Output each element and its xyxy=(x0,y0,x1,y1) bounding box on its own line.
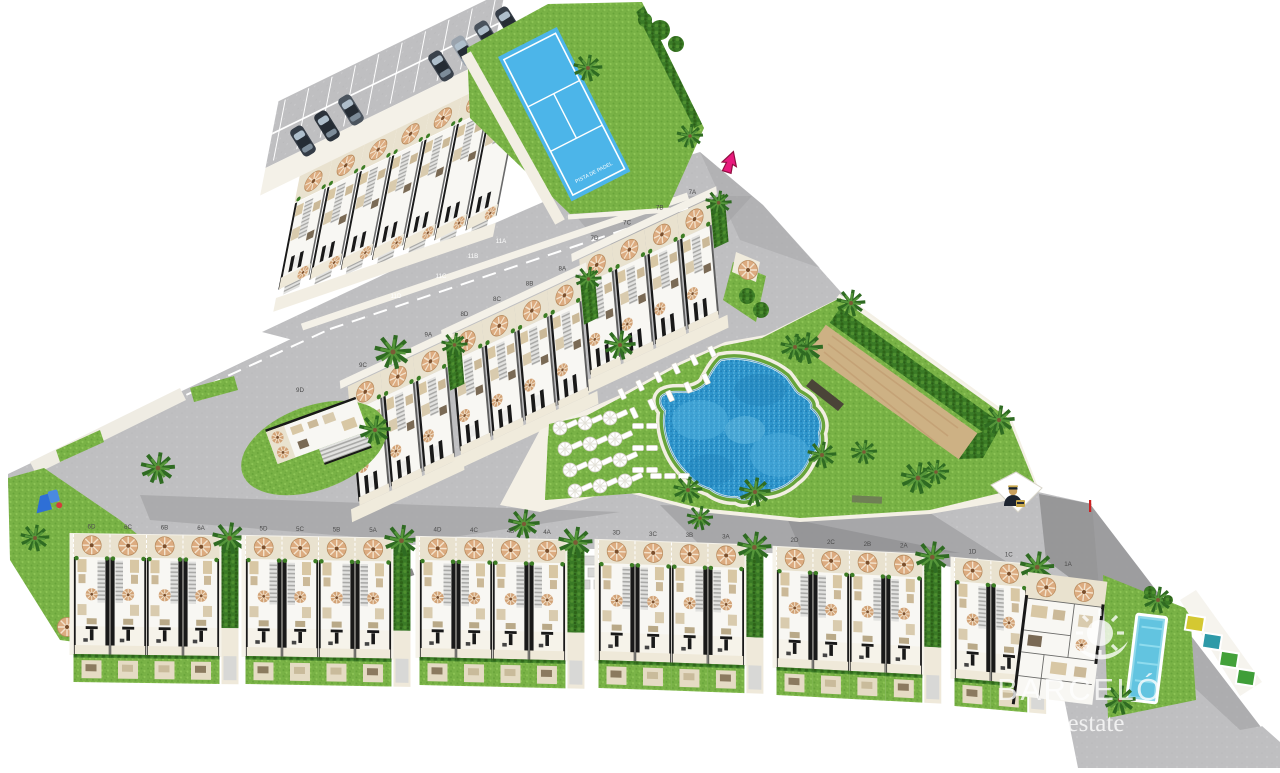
svg-text:estate: estate xyxy=(1068,710,1125,737)
svg-text:7A: 7A xyxy=(689,189,697,196)
svg-text:1D: 1D xyxy=(968,549,976,556)
svg-text:6C: 6C xyxy=(124,524,132,531)
svg-text:5D: 5D xyxy=(260,525,268,532)
svg-text:11D: 11D xyxy=(391,293,402,300)
svg-text:9A: 9A xyxy=(425,331,433,338)
svg-text:6A: 6A xyxy=(197,525,205,532)
svg-text:11B: 11B xyxy=(468,253,479,260)
svg-text:7B: 7B xyxy=(656,205,664,212)
svg-text:1C: 1C xyxy=(1005,552,1013,559)
svg-text:5C: 5C xyxy=(296,526,304,533)
svg-text:3B: 3B xyxy=(686,532,694,539)
svg-text:11C: 11C xyxy=(436,273,447,280)
svg-text:9C: 9C xyxy=(359,362,367,369)
svg-text:3C: 3C xyxy=(649,531,657,538)
svg-text:4A: 4A xyxy=(543,529,551,536)
svg-text:2A: 2A xyxy=(900,543,908,550)
svg-text:11A: 11A xyxy=(496,238,507,245)
svg-text:9D: 9D xyxy=(296,387,304,394)
svg-text:2B: 2B xyxy=(864,541,872,548)
svg-text:2C: 2C xyxy=(827,539,835,546)
svg-text:5B: 5B xyxy=(333,527,341,534)
svg-text:8C: 8C xyxy=(493,296,501,303)
svg-text:8A: 8A xyxy=(559,265,567,272)
svg-text:BARCELÓ: BARCELÓ xyxy=(997,672,1163,707)
svg-text:8B: 8B xyxy=(526,281,534,288)
svg-text:6B: 6B xyxy=(161,524,169,531)
svg-text:3A: 3A xyxy=(722,533,730,540)
svg-text:5A: 5A xyxy=(369,527,377,534)
svg-text:6D: 6D xyxy=(88,523,96,530)
svg-text:4D: 4D xyxy=(434,526,442,533)
svg-text:7C: 7C xyxy=(623,220,631,227)
svg-text:1A: 1A xyxy=(1064,561,1072,568)
svg-text:7D: 7D xyxy=(591,235,599,242)
svg-text:8D: 8D xyxy=(460,311,468,318)
svg-text:4B: 4B xyxy=(507,528,515,535)
svg-text:4C: 4C xyxy=(470,527,478,534)
svg-text:2D: 2D xyxy=(791,537,799,544)
svg-text:3D: 3D xyxy=(613,530,621,537)
